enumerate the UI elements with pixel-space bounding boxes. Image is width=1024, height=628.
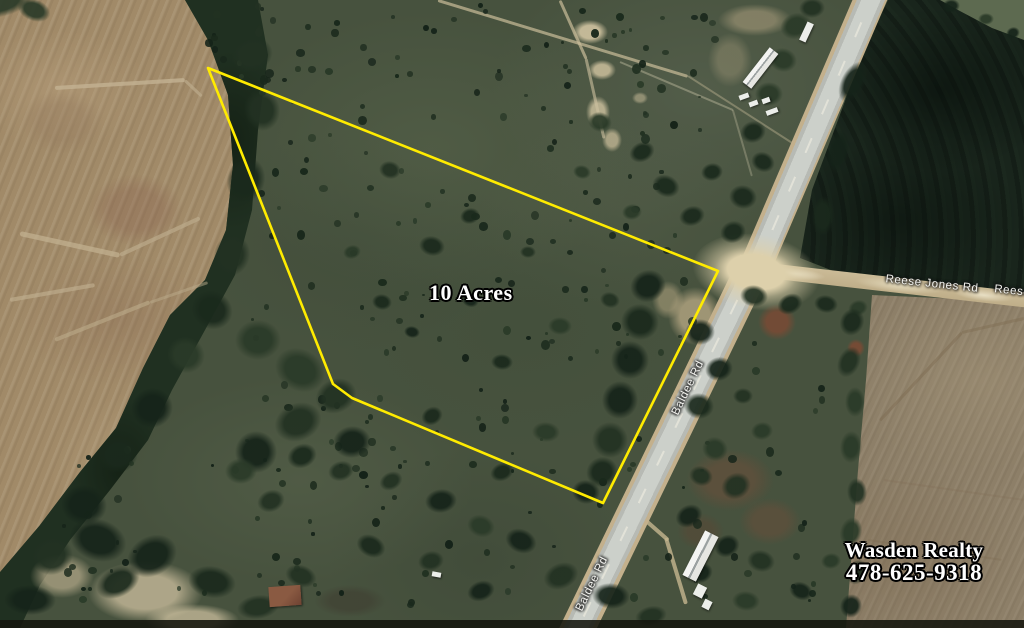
image-bottom-edge [0, 620, 1024, 628]
aerial-map: 10 Acres Baldee Rd Baldee Rd Reese Jones… [0, 0, 1024, 628]
acreage-label: 10 Acres [429, 280, 513, 306]
realty-branding: Wasden Realty 478-625-9318 [840, 540, 988, 585]
realty-phone: 478-625-9318 [840, 561, 988, 584]
realty-name: Wasden Realty [840, 540, 988, 561]
buildings [0, 0, 1024, 628]
